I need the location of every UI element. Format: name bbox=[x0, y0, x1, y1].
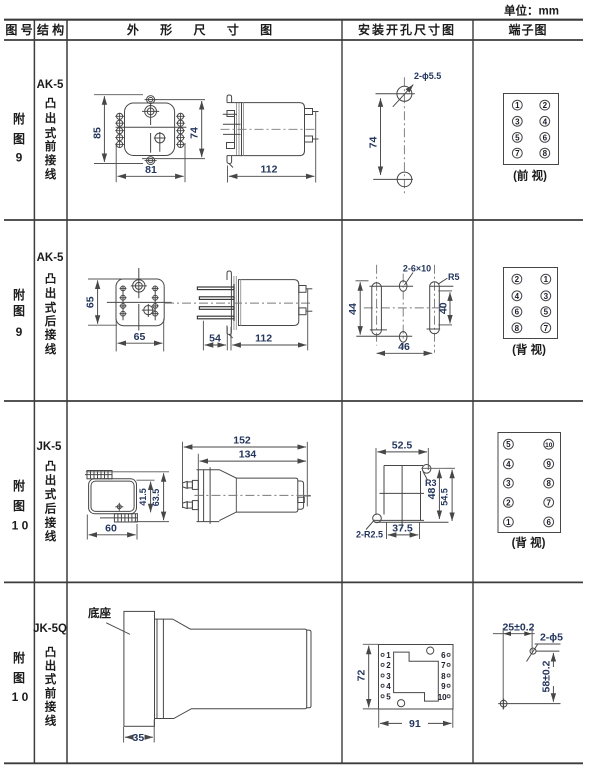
svg-text:(前 视): (前 视) bbox=[513, 169, 547, 183]
svg-text:2: 2 bbox=[506, 498, 511, 507]
svg-text:37.5: 37.5 bbox=[392, 522, 413, 534]
svg-text:4: 4 bbox=[386, 682, 391, 691]
svg-text:7: 7 bbox=[441, 661, 446, 670]
svg-text:图: 图 bbox=[13, 499, 25, 513]
svg-text:41.5: 41.5 bbox=[138, 488, 148, 506]
svg-text:附: 附 bbox=[13, 650, 25, 665]
svg-text:60: 60 bbox=[105, 522, 117, 534]
svg-text:9: 9 bbox=[16, 151, 23, 165]
svg-text:前: 前 bbox=[45, 686, 57, 700]
svg-text:图: 图 bbox=[13, 671, 25, 685]
svg-text:前: 前 bbox=[45, 139, 57, 153]
svg-text:5: 5 bbox=[506, 440, 511, 449]
svg-text:52.5: 52.5 bbox=[392, 439, 413, 451]
svg-text:(背 视): (背 视) bbox=[512, 343, 546, 357]
svg-text:安装开孔尺寸图: 安装开孔尺寸图 bbox=[358, 22, 456, 37]
svg-text:74: 74 bbox=[189, 127, 201, 139]
svg-text:54.5: 54.5 bbox=[439, 488, 449, 506]
svg-text:线: 线 bbox=[45, 714, 57, 728]
svg-text:9: 9 bbox=[16, 325, 23, 339]
svg-text:接: 接 bbox=[45, 328, 57, 342]
svg-text:72: 72 bbox=[355, 670, 367, 682]
svg-text:(背 视): (背 视) bbox=[512, 536, 546, 550]
svg-text:46: 46 bbox=[398, 341, 410, 353]
svg-text:附: 附 bbox=[13, 478, 25, 493]
svg-text:7: 7 bbox=[544, 324, 549, 333]
svg-text:后: 后 bbox=[45, 502, 57, 516]
svg-text:2: 2 bbox=[386, 661, 391, 670]
svg-text:1: 1 bbox=[515, 101, 520, 110]
svg-text:54: 54 bbox=[209, 332, 221, 344]
svg-text:48: 48 bbox=[426, 488, 438, 500]
svg-text:3: 3 bbox=[506, 479, 511, 488]
svg-text:JK-5Q: JK-5Q bbox=[33, 623, 67, 635]
svg-text:接: 接 bbox=[45, 153, 57, 167]
svg-text:外 形 尺 寸 图: 外 形 尺 寸 图 bbox=[127, 22, 281, 37]
svg-text:出: 出 bbox=[45, 659, 57, 673]
svg-text:1: 1 bbox=[506, 518, 511, 527]
svg-text:5: 5 bbox=[515, 133, 520, 142]
svg-text:91: 91 bbox=[409, 718, 421, 730]
svg-text:图: 图 bbox=[13, 304, 25, 318]
svg-text:5: 5 bbox=[544, 308, 549, 317]
svg-text:凸: 凸 bbox=[45, 460, 57, 473]
svg-text:152: 152 bbox=[233, 435, 251, 447]
svg-text:63.5: 63.5 bbox=[151, 489, 161, 507]
svg-text:单位：mm: 单位：mm bbox=[504, 4, 559, 18]
svg-text:出: 出 bbox=[45, 111, 57, 125]
svg-text:4: 4 bbox=[506, 460, 511, 469]
svg-text:2-R2.5: 2-R2.5 bbox=[356, 530, 383, 540]
svg-text:式: 式 bbox=[45, 672, 57, 686]
svg-text:9: 9 bbox=[546, 460, 551, 469]
svg-text:接: 接 bbox=[45, 516, 57, 530]
svg-text:2-ϕ5: 2-ϕ5 bbox=[540, 631, 563, 643]
svg-text:式: 式 bbox=[45, 487, 57, 501]
svg-text:7: 7 bbox=[515, 149, 520, 158]
svg-text:65: 65 bbox=[85, 296, 97, 308]
svg-text:图 号: 图 号 bbox=[5, 22, 32, 37]
svg-text:线: 线 bbox=[45, 342, 57, 356]
svg-text:2-ϕ5.5: 2-ϕ5.5 bbox=[414, 71, 441, 81]
svg-text:9: 9 bbox=[441, 682, 446, 691]
svg-text:35: 35 bbox=[133, 732, 145, 744]
svg-text:5: 5 bbox=[386, 693, 391, 702]
svg-text:底座: 底座 bbox=[88, 606, 111, 620]
svg-text:JK-5: JK-5 bbox=[37, 441, 63, 453]
svg-text:凸: 凸 bbox=[45, 97, 57, 110]
svg-text:AK-5: AK-5 bbox=[37, 79, 64, 91]
svg-text:后: 后 bbox=[45, 314, 57, 328]
svg-text:6: 6 bbox=[543, 133, 548, 142]
svg-text:3: 3 bbox=[544, 292, 549, 301]
svg-text:2: 2 bbox=[515, 275, 520, 284]
svg-text:线: 线 bbox=[45, 167, 57, 181]
svg-text:附: 附 bbox=[13, 111, 25, 126]
svg-text:图: 图 bbox=[13, 132, 25, 146]
svg-text:6: 6 bbox=[546, 518, 551, 527]
svg-text:3: 3 bbox=[515, 117, 520, 126]
svg-text:74: 74 bbox=[368, 137, 380, 149]
svg-text:134: 134 bbox=[239, 449, 257, 461]
svg-text:58±0.2: 58±0.2 bbox=[540, 660, 552, 692]
svg-text:3: 3 bbox=[386, 672, 391, 681]
svg-text:附: 附 bbox=[13, 287, 25, 302]
svg-text:4: 4 bbox=[543, 117, 548, 126]
svg-text:线: 线 bbox=[45, 529, 57, 543]
svg-text:式: 式 bbox=[45, 126, 57, 140]
svg-text:81: 81 bbox=[145, 164, 157, 176]
svg-text:端子图: 端子图 bbox=[508, 22, 547, 37]
svg-text:7: 7 bbox=[546, 498, 551, 507]
svg-text:10: 10 bbox=[545, 442, 553, 449]
svg-text:8: 8 bbox=[543, 149, 548, 158]
svg-text:凸: 凸 bbox=[45, 273, 57, 286]
svg-text:112: 112 bbox=[261, 164, 278, 176]
svg-text:1 0: 1 0 bbox=[12, 690, 29, 704]
svg-text:出: 出 bbox=[45, 286, 57, 300]
svg-text:接: 接 bbox=[45, 700, 57, 714]
svg-text:25±0.2: 25±0.2 bbox=[502, 621, 534, 633]
svg-text:凸: 凸 bbox=[45, 646, 57, 659]
svg-text:44: 44 bbox=[347, 303, 359, 315]
svg-text:4: 4 bbox=[515, 292, 520, 301]
svg-text:R5: R5 bbox=[448, 272, 460, 282]
svg-text:6: 6 bbox=[515, 308, 520, 317]
svg-text:65: 65 bbox=[134, 331, 146, 343]
svg-text:结 构: 结 构 bbox=[37, 22, 64, 37]
svg-text:8: 8 bbox=[515, 324, 520, 333]
svg-text:8: 8 bbox=[441, 672, 446, 681]
svg-text:式: 式 bbox=[45, 301, 57, 315]
svg-text:1: 1 bbox=[386, 651, 391, 660]
svg-text:112: 112 bbox=[255, 332, 272, 344]
svg-text:1: 1 bbox=[544, 275, 549, 284]
svg-text:10: 10 bbox=[438, 693, 447, 702]
svg-text:2-6×10: 2-6×10 bbox=[403, 264, 431, 274]
svg-text:6: 6 bbox=[441, 651, 446, 660]
svg-text:40: 40 bbox=[438, 302, 450, 314]
svg-text:85: 85 bbox=[92, 127, 104, 139]
svg-text:8: 8 bbox=[546, 479, 551, 488]
svg-text:出: 出 bbox=[45, 473, 57, 487]
svg-text:AK-5: AK-5 bbox=[37, 252, 64, 264]
svg-text:2: 2 bbox=[543, 101, 548, 110]
svg-text:1 0: 1 0 bbox=[12, 519, 29, 533]
